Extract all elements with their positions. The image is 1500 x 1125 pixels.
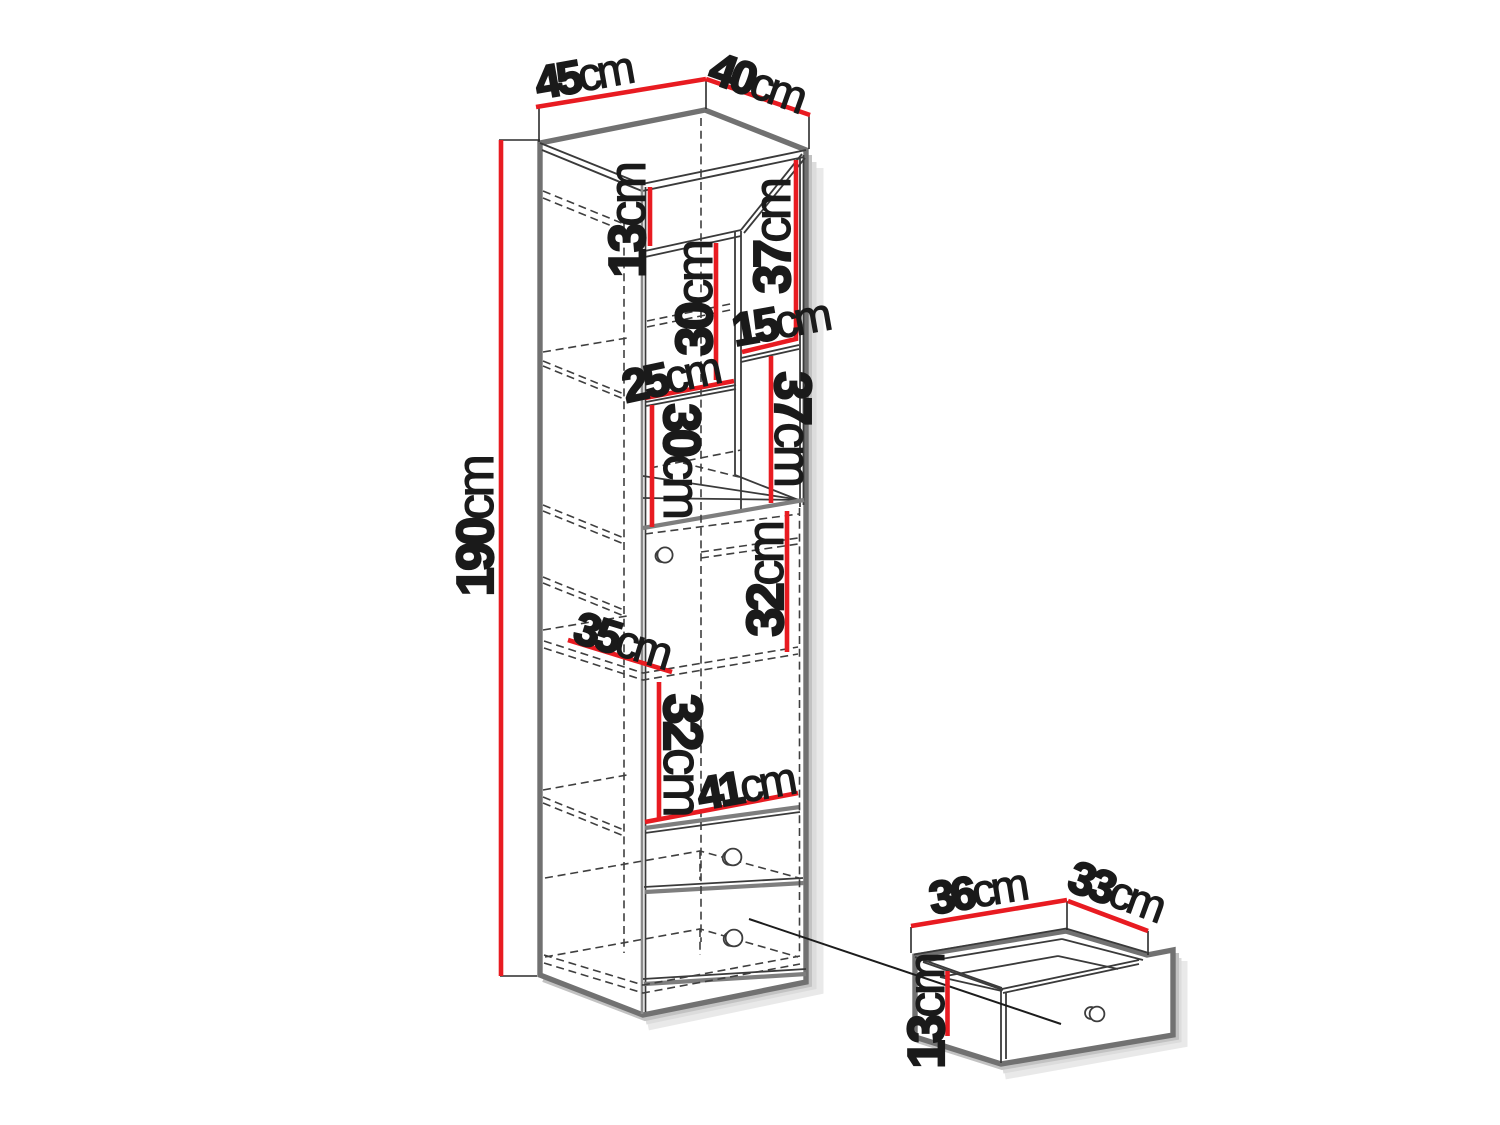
svg-text:30cm: 30cm (652, 403, 710, 516)
svg-text:37cm: 37cm (763, 371, 821, 484)
svg-text:190cm: 190cm (447, 458, 505, 597)
svg-text:32cm: 32cm (737, 523, 795, 636)
svg-text:37cm: 37cm (744, 180, 802, 293)
svg-text:30cm: 30cm (666, 242, 724, 355)
svg-text:13cm: 13cm (599, 164, 657, 277)
svg-text:32cm: 32cm (652, 694, 714, 815)
svg-text:13cm: 13cm (898, 955, 956, 1068)
